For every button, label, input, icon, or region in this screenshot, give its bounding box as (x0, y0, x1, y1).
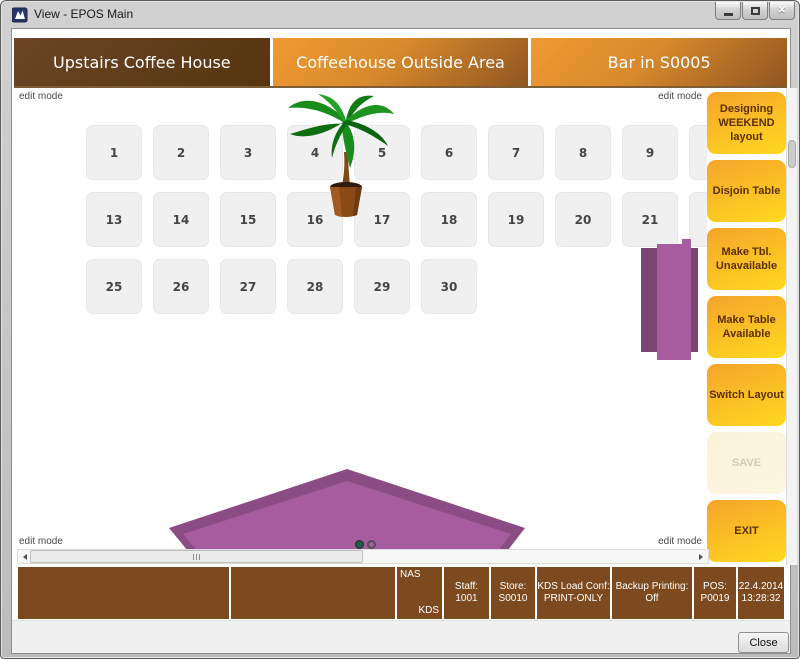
page-dot-2[interactable] (367, 540, 376, 549)
vertical-scrollbar-thumb[interactable] (788, 140, 796, 168)
sidebar-button-make-tbl-unavailable[interactable]: Make Tbl. Unavailable (707, 228, 786, 290)
status-cell-backup-printing: Backup Printing:Off (612, 567, 692, 619)
floor-plan: edit mode edit mode edit mode edit mode (12, 88, 707, 549)
status-value: Off (645, 593, 658, 606)
potted-palm-plant[interactable] (284, 94, 396, 220)
window-controls: ✕ (715, 2, 795, 20)
horizontal-scrollbar-thumb[interactable] (30, 550, 363, 563)
status-label: Staff: (455, 581, 478, 594)
scrollbar-grip-icon (193, 554, 201, 560)
scroll-left-icon (23, 554, 27, 560)
maximize-button[interactable] (742, 2, 768, 20)
minimize-button[interactable] (715, 2, 741, 20)
edit-mode-label-bottom-right: edit mode (658, 536, 702, 547)
horizontal-scrollbar[interactable] (17, 549, 709, 564)
client-area: Upstairs Coffee HouseCoffeehouse Outside… (12, 29, 790, 653)
tab-bar-in-s0005[interactable]: Bar in S0005 (531, 38, 787, 86)
status-cell-blank (231, 567, 395, 619)
app-icon (12, 7, 28, 23)
status-label: Backup Printing: (616, 581, 689, 594)
status-label: 22.4.2014 (739, 581, 784, 594)
scroll-right-icon (699, 554, 703, 560)
maximize-icon (751, 7, 760, 15)
status-cell-store: Store:S0010 (491, 567, 535, 619)
status-bar: NASKDSStaff:1001Store:S0010KDS Load Conf… (18, 567, 784, 619)
sidebar: Designing WEEKEND layoutDisjoin TableMak… (707, 88, 786, 565)
page-dot-1[interactable] (355, 540, 364, 549)
status-label: KDS Load Conf: (537, 581, 609, 594)
status-value: PRINT-ONLY (544, 593, 603, 606)
tab-bar: Upstairs Coffee HouseCoffeehouse Outside… (14, 38, 787, 86)
edit-mode-label-bottom-left: edit mode (19, 536, 63, 547)
status-cell-pos: POS:P0019 (694, 567, 736, 619)
tab-coffeehouse-outside-area[interactable]: Coffeehouse Outside Area (273, 38, 529, 86)
status-value: 13:28:32 (742, 593, 781, 606)
window-title: View - EPOS Main (34, 1, 133, 28)
status-value: S0010 (499, 593, 528, 606)
status-value: 1001 (455, 593, 477, 606)
titlebar[interactable]: View - EPOS Main ✕ (1, 1, 799, 29)
window-close-button[interactable]: ✕ (769, 2, 795, 20)
status-text: NAS (400, 569, 421, 582)
edit-mode-label-top-right: edit mode (658, 91, 702, 102)
page-indicator (355, 540, 376, 549)
footer: Close (12, 620, 790, 653)
scroll-right-button[interactable] (694, 550, 708, 563)
status-text: KDS (418, 605, 439, 618)
status-cell-kds-load-conf: KDS Load Conf:PRINT-ONLY (537, 567, 610, 619)
status-value: P0019 (701, 593, 730, 606)
edit-mode-label-top-left: edit mode (19, 91, 63, 102)
status-cell-staff: Staff:1001 (444, 567, 489, 619)
close-icon: ✕ (778, 5, 786, 16)
status-label: Store: (500, 581, 527, 594)
sidebar-button-disjoin-table[interactable]: Disjoin Table (707, 160, 786, 222)
status-cell-blank (18, 567, 229, 619)
sidebar-button-designing-weekend-layout[interactable]: Designing WEEKEND layout (707, 92, 786, 154)
sidebar-button-exit[interactable]: EXIT (707, 500, 786, 562)
vertical-scrollbar[interactable] (786, 88, 798, 565)
sidebar-button-make-table-available[interactable]: Make Table Available (707, 296, 786, 358)
sidebar-button-switch-layout[interactable]: Switch Layout (707, 364, 786, 426)
status-label: POS: (703, 581, 727, 594)
sidebar-button-save: SAVE (707, 432, 786, 494)
close-button[interactable]: Close (738, 632, 789, 653)
status-cell-22-4-2014: 22.4.201413:28:32 (738, 567, 784, 619)
minimize-icon (724, 13, 733, 16)
window: View - EPOS Main ✕ Upstairs Coffee House… (0, 0, 800, 659)
status-cell-nas-kds: NASKDS (397, 567, 442, 619)
tab-upstairs-coffee-house[interactable]: Upstairs Coffee House (14, 38, 270, 86)
